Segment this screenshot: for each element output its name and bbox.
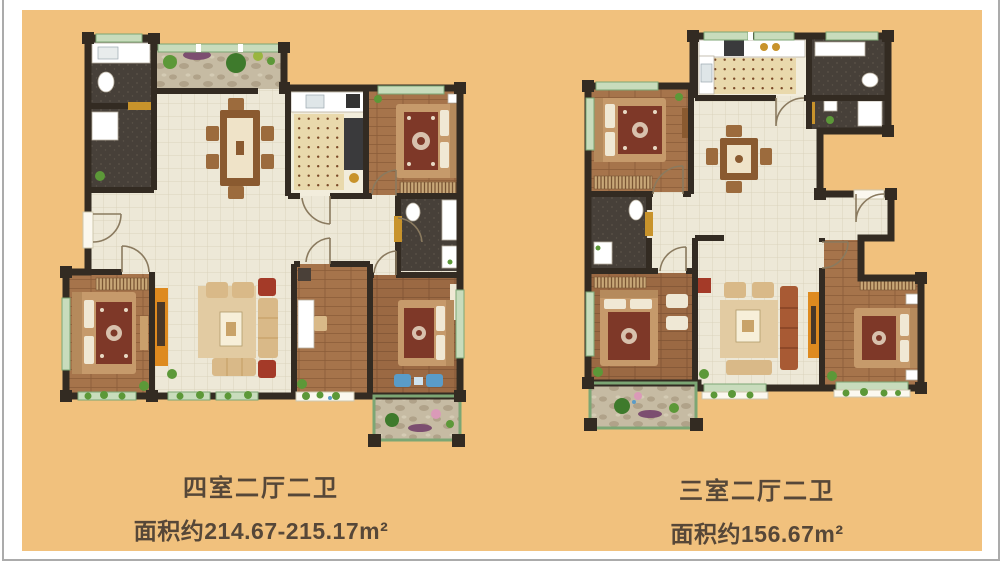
desk-icon [298,300,314,348]
caption-left-unit: 四室二厅二卫 面积约214.67-215.17m² [111,468,411,546]
wardrobe-icon [594,176,652,189]
stove-icon [344,118,364,170]
caption-right-unit: 三室二厅二卫 面积约156.67m² [607,471,907,549]
armchair-icon [394,374,411,387]
bed-right [854,308,918,368]
shower-icon [92,112,118,140]
plant-icon [95,171,105,181]
left-unit-title: 四室二厅二卫 [111,468,411,503]
sink-icon [701,64,712,82]
floor-plan-right-3room [576,26,940,438]
bed-bottom-left [72,292,136,374]
wardrobe-icon [96,278,150,290]
right-unit-title: 三室二厅二卫 [607,471,907,506]
bed-master [398,300,454,366]
tub-icon [815,42,865,56]
room-balcony-top [156,48,284,89]
left-unit-area: 面积约214.67-215.17m² [111,512,411,546]
floor-plan-left-4room [55,26,469,458]
stove-icon [724,40,744,56]
balcony-bottom-left [590,383,696,428]
bed-top-right [396,104,458,178]
toilet-icon [98,72,114,92]
toilet-icon [629,200,643,220]
bed-master [600,290,658,366]
bed-top-left [594,98,666,162]
wardrobe-icon [594,277,646,288]
shower-icon [858,101,882,126]
toilet-icon [862,73,878,87]
washer-icon [594,242,612,264]
entry-door-gap [83,212,93,248]
right-unit-area: 面积约156.67m² [607,515,907,549]
wardrobe-icon [400,182,458,194]
toilet-icon [406,203,420,221]
door-threshold [128,102,152,110]
armchair-icon [426,374,443,387]
sink-icon [306,95,324,108]
